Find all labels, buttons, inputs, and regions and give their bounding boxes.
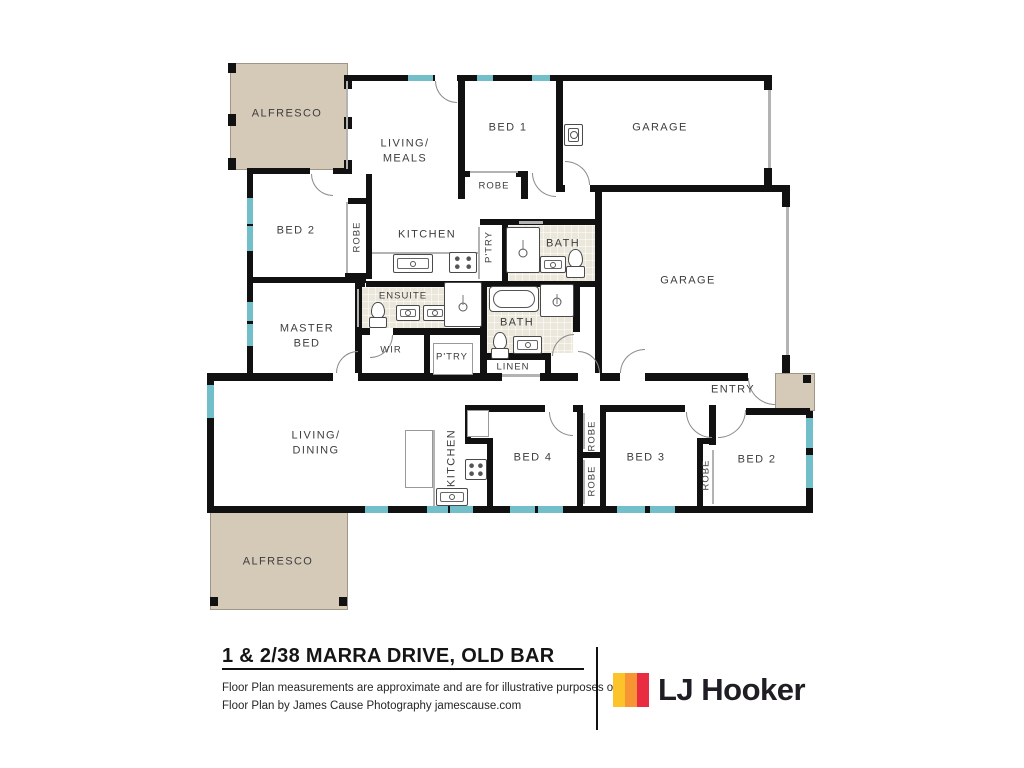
window — [247, 226, 253, 251]
room-label-master-bed: MASTER BED — [280, 322, 334, 353]
shower-icon — [540, 284, 574, 317]
wall — [590, 185, 790, 192]
wall — [247, 168, 310, 174]
room-label-garage: GARAGE — [632, 120, 687, 135]
window — [247, 198, 253, 224]
toilet-icon — [369, 302, 387, 328]
door-arc — [565, 161, 590, 185]
room-label-bed-1: BED 1 — [489, 120, 528, 135]
door-line — [768, 90, 771, 168]
wall — [355, 328, 370, 335]
bathtub-icon — [489, 286, 539, 312]
wall — [645, 373, 748, 381]
window — [532, 75, 550, 81]
wall — [366, 174, 372, 279]
logo-stripe-red — [637, 673, 649, 707]
wall — [358, 373, 502, 381]
kitchen-island — [405, 430, 433, 488]
disclaimer-line-1: Floor Plan measurements are approximate … — [222, 682, 630, 694]
wall — [606, 405, 685, 412]
brand-logo: LJ Hooker — [613, 673, 805, 707]
fridge-space — [467, 410, 489, 437]
door-line — [357, 289, 359, 327]
window — [365, 506, 388, 513]
door-line — [478, 227, 480, 279]
room-label-bed-4: BED 4 — [514, 450, 553, 465]
shower-icon — [506, 227, 540, 273]
wall — [247, 277, 366, 283]
sink-icon — [540, 256, 566, 273]
door-arc — [532, 173, 556, 197]
window — [806, 455, 813, 488]
wall — [458, 81, 465, 171]
sink-icon — [513, 336, 542, 354]
door-line — [470, 171, 518, 173]
wall — [556, 75, 563, 185]
sink-icon — [436, 488, 468, 506]
wall — [573, 281, 580, 332]
wall — [600, 405, 606, 513]
room-label-living-meals: LIVING/ MEALS — [381, 137, 430, 168]
window — [617, 506, 645, 513]
room-label-robe: ROBE — [699, 460, 712, 491]
door-line — [502, 374, 540, 377]
window — [427, 506, 448, 513]
wall — [746, 408, 810, 415]
corner-post — [210, 597, 218, 606]
door-arc — [718, 410, 746, 438]
footer-divider — [596, 647, 598, 730]
wall — [540, 373, 578, 381]
wall — [480, 353, 487, 373]
wall — [521, 177, 528, 199]
window — [207, 385, 214, 418]
door-line — [786, 207, 789, 355]
door-arc — [620, 349, 645, 373]
wall — [600, 373, 620, 381]
room-label-robe: ROBE — [350, 222, 363, 253]
toilet-icon — [566, 249, 585, 278]
wall — [424, 335, 430, 373]
floor-plan-page: ALFRESCOLIVING/ MEALSBED 1ROBEGARAGEBED … — [0, 0, 1024, 768]
corner-post — [803, 375, 811, 383]
shower-icon — [444, 282, 482, 327]
door-arc — [549, 412, 573, 436]
room-label-living-dining: LIVING/ DINING — [292, 429, 341, 460]
wall — [393, 328, 482, 335]
room-label-p-try: P'TRY — [482, 231, 495, 263]
window — [247, 324, 253, 346]
wall — [457, 75, 772, 81]
logo-stripe-orange — [625, 673, 637, 707]
room-label-p-try: P'TRY — [436, 350, 468, 363]
room-label-kitchen: KITCHEN — [398, 227, 456, 242]
window — [247, 302, 253, 321]
sink-icon — [393, 254, 433, 273]
logo-stripe-yellow — [613, 673, 625, 707]
door-line — [433, 430, 435, 506]
wall — [577, 452, 606, 458]
tub-icon — [564, 124, 583, 146]
address-underline — [222, 668, 584, 670]
wall — [487, 438, 493, 513]
room-label-alfresco: ALFRESCO — [252, 106, 323, 121]
window — [477, 75, 493, 81]
wall — [782, 192, 790, 207]
window — [650, 506, 675, 513]
room-label-bed-3: BED 3 — [627, 450, 666, 465]
door-arc — [435, 81, 457, 103]
door-arc — [311, 174, 333, 196]
cooktop-icon — [449, 252, 477, 273]
room-label-bed-2: BED 2 — [738, 452, 777, 467]
room-label-robe: ROBE — [479, 179, 510, 192]
window — [538, 506, 563, 513]
room-label-robe: ROBE — [585, 466, 598, 497]
brand-logo-icon — [613, 673, 649, 707]
wall — [556, 185, 565, 192]
corner-post — [228, 114, 236, 126]
window — [806, 418, 813, 448]
sink-icon — [396, 305, 420, 321]
door-line — [519, 221, 543, 224]
window — [510, 506, 535, 513]
toilet-icon — [491, 332, 509, 359]
room-label-bath: BATH — [500, 315, 534, 330]
door-line — [346, 81, 348, 169]
room-label-garage: GARAGE — [660, 273, 715, 288]
room-label-alfresco: ALFRESCO — [243, 554, 314, 569]
wall — [764, 168, 772, 185]
cooktop-icon — [465, 459, 487, 480]
door-arc — [336, 351, 358, 373]
window — [408, 75, 433, 81]
room-label-entry: ENTRY — [711, 382, 755, 397]
wall — [207, 373, 333, 381]
corner-post — [228, 158, 236, 170]
corner-post — [339, 597, 347, 606]
wall — [545, 353, 551, 373]
window — [450, 506, 473, 513]
room-label-wir: WIR — [380, 343, 401, 356]
door-arc — [686, 412, 712, 438]
wall — [348, 198, 366, 204]
room-label-bed-2: BED 2 — [277, 223, 316, 238]
brand-name: LJ Hooker — [658, 673, 805, 707]
room-label-ensuite: ENSUITE — [379, 289, 427, 302]
wall — [764, 75, 772, 90]
wall — [355, 281, 365, 287]
room-label-bath: BATH — [546, 236, 580, 251]
room-label-linen: LINEN — [497, 360, 530, 373]
door-line — [346, 202, 348, 273]
room-label-kitchen: KITCHEN — [444, 429, 459, 487]
address-title: 1 & 2/38 MARRA DRIVE, OLD BAR — [222, 645, 554, 668]
disclaimer-line-2: Floor Plan by James Cause Photography ja… — [222, 700, 521, 712]
room-label-robe: ROBE — [585, 421, 598, 452]
wall — [782, 355, 790, 373]
wall — [458, 177, 465, 199]
corner-post — [228, 63, 236, 73]
